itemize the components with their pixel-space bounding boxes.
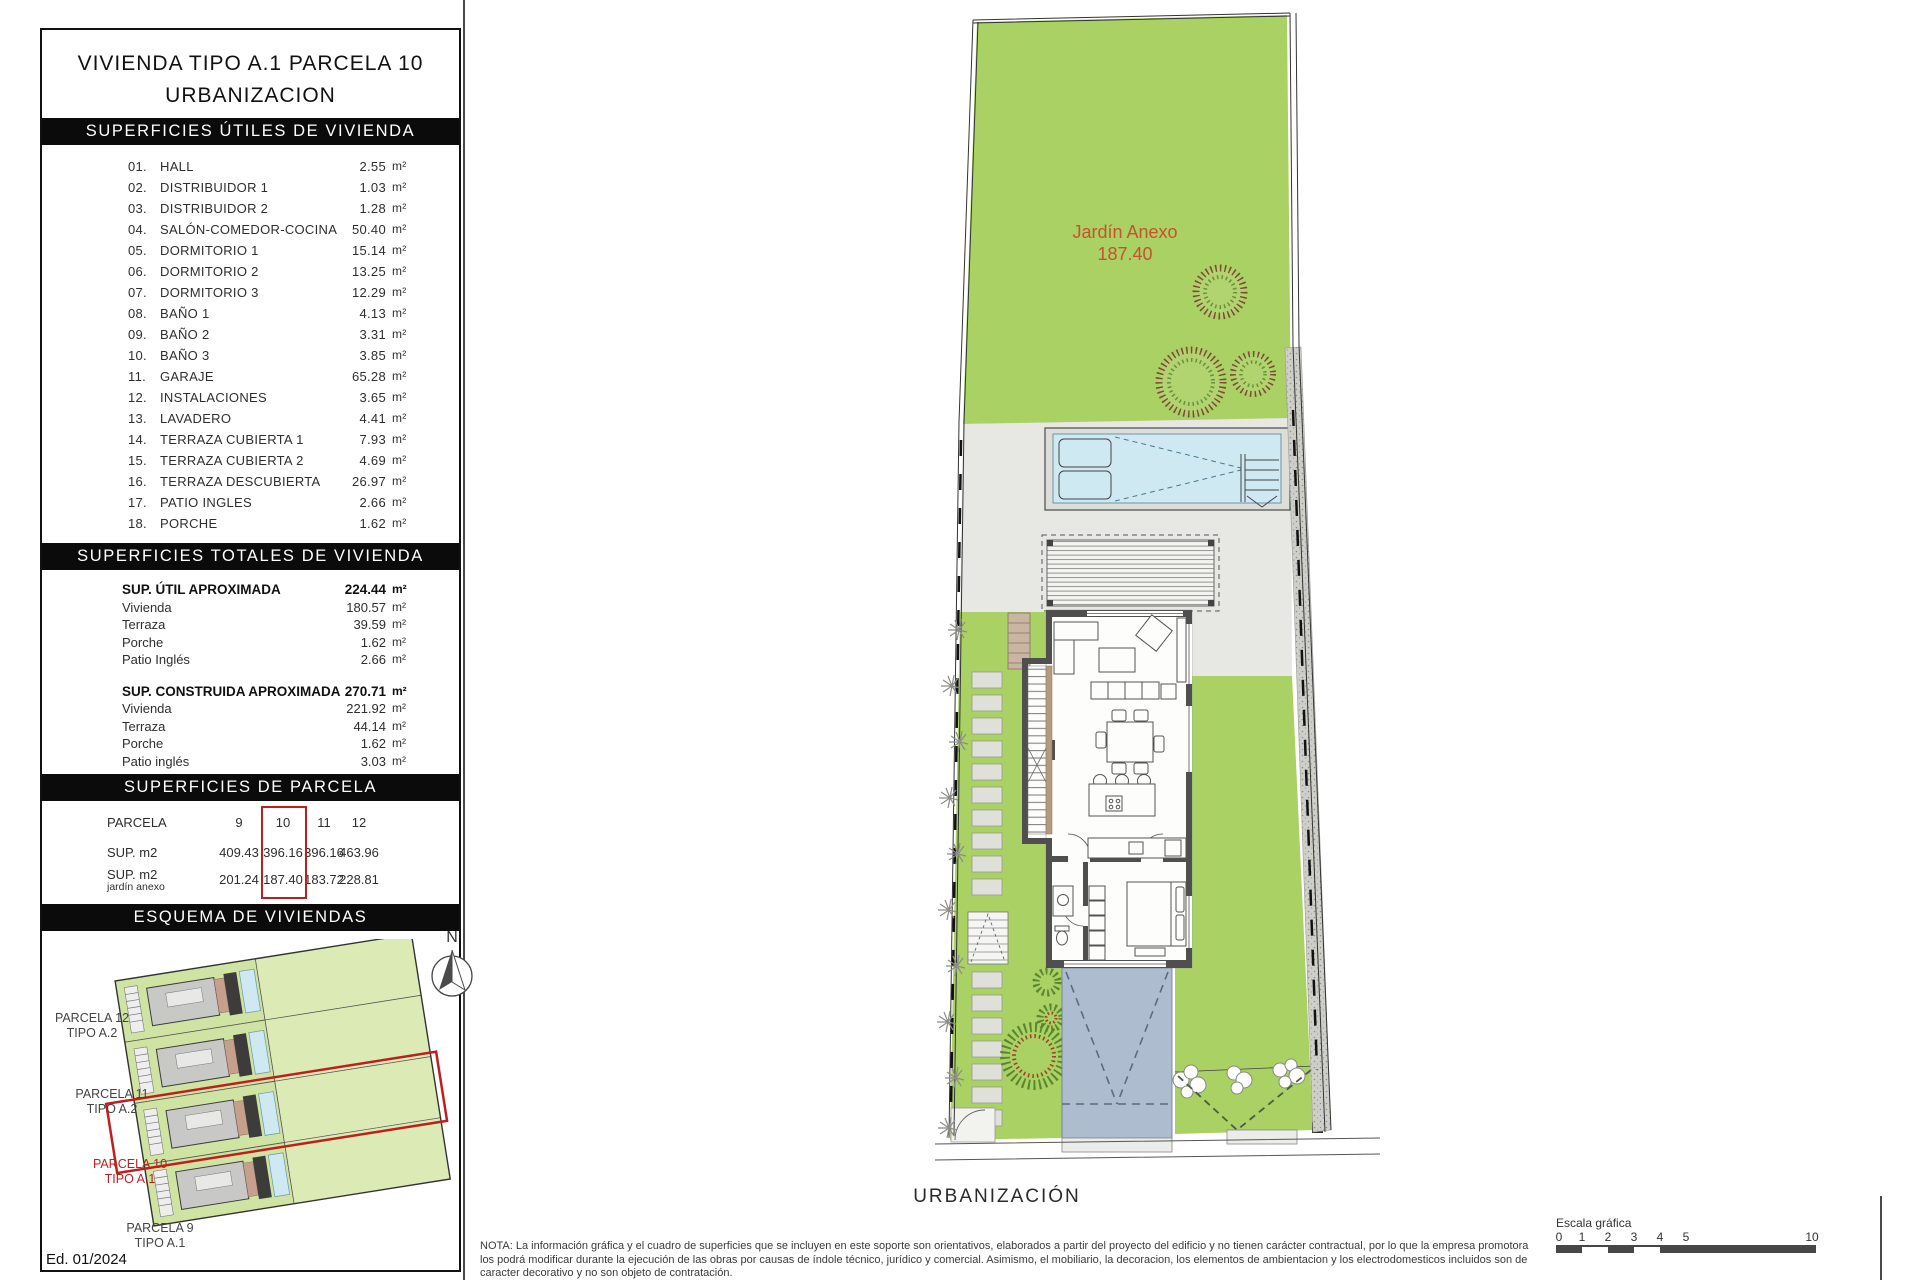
plan-caption: URBANIZACIÓN [866, 1186, 1128, 1208]
room-label: DORMITORIO 1 [160, 243, 259, 258]
sideboard [1108, 682, 1125, 699]
kitchen-sink [1129, 842, 1143, 854]
parcela-col-label: PARCELA [107, 815, 167, 830]
disclaimer-note: NOTA: La información gráfica y el cuadro… [480, 1240, 1542, 1280]
section-header-superficies-parcela: SUPERFICIES DE PARCELA [42, 774, 459, 801]
room-label: TERRAZA DESCUBIERTA [160, 474, 321, 489]
sideboard [1091, 682, 1108, 699]
room-label: DISTRIBUIDOR 2 [160, 201, 268, 216]
esquema-parcel-label: PARCELA 12TIPO A.2 [42, 1011, 142, 1041]
room-row: 03.DISTRIBUIDOR 21.28m² [42, 201, 459, 222]
wardrobe [1089, 901, 1105, 915]
room-label: BAÑO 2 [160, 327, 209, 342]
floor-plan: Jardín Anexo 187.40 [935, 10, 1380, 1165]
room-number: 13. [128, 411, 147, 426]
section-header-superficies-totales: SUPERFICIES TOTALES DE VIVIENDA [42, 543, 459, 570]
pool-lounger [1059, 471, 1111, 499]
sideboard [1142, 682, 1159, 699]
room-row: 02.DISTRIBUIDOR 11.03m² [42, 180, 459, 201]
total-row: Patio inglés3.03m² [42, 754, 459, 772]
room-number: 09. [128, 327, 147, 342]
sup-jardin-value: 201.24 [219, 872, 259, 887]
staircase [1028, 666, 1052, 834]
pillow [1176, 887, 1184, 912]
pool-lounger [1059, 439, 1111, 467]
house [1022, 610, 1192, 968]
room-label: INSTALACIONES [160, 390, 267, 405]
room-area-value: 3.85 [310, 348, 386, 363]
room-area-unit: m² [392, 264, 407, 278]
room-label: DISTRIBUIDOR 1 [160, 180, 268, 195]
toilet [1057, 931, 1068, 945]
room-area-unit: m² [392, 369, 407, 383]
room-area-value: 50.40 [310, 222, 386, 237]
section-header-superficies-utiles: SUPERFICIES ÚTILES DE VIVIENDA [42, 118, 459, 145]
room-number: 18. [128, 516, 147, 531]
room-area-value: 12.29 [310, 285, 386, 300]
room-area-value: 65.28 [310, 369, 386, 384]
total-row: Terraza39.59m² [42, 617, 459, 635]
room-area-list: 01.HALL2.55m² 02.DISTRIBUIDOR 11.03m² 03… [42, 145, 459, 537]
room-area-unit: m² [392, 474, 407, 488]
room-row: 08.BAÑO 14.13m² [42, 306, 459, 327]
sideboard [1161, 684, 1176, 699]
wardrobe [1089, 886, 1105, 900]
esquema-parcel-label: PARCELA 9TIPO A.1 [110, 1221, 210, 1251]
rear-garden-right [1173, 676, 1315, 1134]
room-row: 17.PATIO INGLES2.66m² [42, 495, 459, 516]
swimming-pool [1045, 428, 1290, 510]
room-number: 14. [128, 432, 147, 447]
room-number: 11. [128, 369, 146, 384]
room-number: 16. [128, 474, 147, 489]
esquema-parcel-label-highlighted: PARCELA 10TIPO A.1 [80, 1157, 180, 1187]
total-row: Porche1.62m² [42, 635, 459, 653]
room-area-unit: m² [392, 411, 407, 425]
room-area-value: 4.41 [310, 411, 386, 426]
room-area-unit: m² [392, 306, 407, 320]
cooktop [1106, 796, 1122, 811]
room-area-value: 4.69 [310, 453, 386, 468]
room-label: BAÑO 3 [160, 348, 209, 363]
room-area-unit: m² [392, 390, 407, 404]
room-row: 14.TERRAZA CUBIERTA 17.93m² [42, 432, 459, 453]
toilet [1055, 926, 1069, 931]
sup-m2-label: SUP. m2 [107, 845, 157, 860]
sup-m2-value: 463.96 [339, 845, 379, 860]
room-row: 15.TERRAZA CUBIERTA 24.69m² [42, 453, 459, 474]
room-number: 15. [128, 453, 147, 468]
driveway-apron [1062, 1138, 1172, 1152]
room-area-value: 1.62 [310, 516, 386, 531]
room-label: TERRAZA CUBIERTA 1 [160, 432, 304, 447]
room-row: 05.DORMITORIO 115.14m² [42, 243, 459, 264]
room-number: 03. [128, 201, 147, 216]
room-row: 06.DORMITORIO 213.25m² [42, 264, 459, 285]
room-row: 18.PORCHE1.62m² [42, 516, 459, 537]
room-row: 16.TERRAZA DESCUBIERTA26.97m² [42, 474, 459, 495]
room-area-value: 2.66 [310, 495, 386, 510]
totals-block: SUP. ÚTIL APROXIMADA224.44m² Vivienda180… [42, 570, 459, 771]
scale-bar-segments [1556, 1245, 1818, 1253]
bath-sink [1058, 895, 1069, 906]
garden-stair [968, 912, 1008, 964]
room-row: 09.BAÑO 23.31m² [42, 327, 459, 348]
room-area-value: 2.55 [310, 159, 386, 174]
room-number: 06. [128, 264, 147, 279]
total-row: Terraza44.14m² [42, 719, 459, 737]
room-area-value: 26.97 [310, 474, 386, 489]
room-label: PORCHE [160, 516, 217, 531]
room-area-unit: m² [392, 201, 407, 215]
room-number: 05. [128, 243, 147, 258]
info-panel: VIVIENDA TIPO A.1 PARCELA 10 URBANIZACIO… [40, 28, 461, 1272]
room-area-unit: m² [392, 159, 407, 173]
room-row: 04.SALÓN-COMEDOR-COCINA50.40m² [42, 222, 459, 243]
total-row: Porche1.62m² [42, 736, 459, 754]
room-area-value: 4.13 [310, 306, 386, 321]
wardrobe [1089, 931, 1105, 945]
wardrobe [1089, 916, 1105, 930]
annex-garden: Jardín Anexo 187.40 [963, 15, 1291, 424]
room-area-unit: m² [392, 180, 407, 194]
room-number: 10. [128, 348, 147, 363]
room-number: 12. [128, 390, 147, 405]
room-row: 01.HALL2.55m² [42, 159, 459, 180]
sup-jardin-label: SUP. m2 [107, 867, 157, 882]
room-row: 12.INSTALACIONES3.65m² [42, 390, 459, 411]
room-area-unit: m² [392, 222, 407, 236]
title-block: VIVIENDA TIPO A.1 PARCELA 10 URBANIZACIO… [42, 30, 459, 108]
sup-m2-value: 396.16 [304, 845, 344, 860]
garden-tree [1196, 268, 1244, 316]
scale-bar-label: Escala gráfica [1556, 1216, 1818, 1230]
garden-tree [1233, 354, 1273, 394]
garden-area-value: 187.40 [1097, 244, 1152, 264]
room-area-value: 13.25 [310, 264, 386, 279]
room-area-value: 1.28 [310, 201, 386, 216]
room-area-value: 3.65 [310, 390, 386, 405]
room-area-value: 1.03 [310, 180, 386, 195]
room-area-unit: m² [392, 327, 407, 341]
room-number: 02. [128, 180, 147, 195]
room-label: TERRAZA CUBIERTA 2 [160, 453, 304, 468]
room-area-unit: m² [392, 348, 407, 362]
north-arrow-icon: N [424, 920, 480, 1006]
room-area-unit: m² [392, 432, 407, 446]
garden-tree [1159, 350, 1223, 414]
pedestrian-gate [951, 1108, 995, 1142]
room-area-unit: m² [392, 243, 407, 257]
sup-jardin-value: 183.72 [304, 872, 344, 887]
total-row: Vivienda221.92m² [42, 701, 459, 719]
room-label: DORMITORIO 2 [160, 264, 259, 279]
room-label: DORMITORIO 3 [160, 285, 259, 300]
room-area-unit: m² [392, 453, 407, 467]
parcela-number: 9 [219, 815, 259, 830]
room-number: 07. [128, 285, 147, 300]
scale-bar: Escala gráfica 0 1 2 3 4 5 10 [1556, 1216, 1818, 1253]
total-row: SUP. CONSTRUIDA APROXIMADA270.71m² [42, 684, 459, 702]
parcela-number: 11 [304, 815, 344, 830]
room-label: HALL [160, 159, 194, 174]
fridge [1165, 840, 1181, 856]
esquema-section: PARCELA 12TIPO A.2 PARCELA 11TIPO A.2 PA… [42, 931, 459, 1272]
room-number: 08. [128, 306, 147, 321]
entrance-apron [1227, 1130, 1297, 1144]
scale-bar-ticks: 0 1 2 3 4 5 10 [1556, 1230, 1818, 1245]
esquema-parcel-label: PARCELA 11TIPO A.2 [62, 1087, 162, 1117]
room-row: 13.LAVADERO4.41m² [42, 411, 459, 432]
wardrobe [1089, 946, 1105, 960]
bed-bench [1135, 948, 1165, 956]
coffee-table [1099, 648, 1135, 672]
room-label: LAVADERO [160, 411, 231, 426]
panel-divider-line [463, 0, 465, 1280]
room-area-value: 7.93 [310, 432, 386, 447]
room-label: PATIO INGLES [160, 495, 252, 510]
room-row: 11.GARAJE65.28m² [42, 369, 459, 390]
north-label: N [446, 929, 458, 946]
plan-sheet: VIVIENDA TIPO A.1 PARCELA 10 URBANIZACIO… [0, 0, 1920, 1280]
sup-m2-value: 409.43 [219, 845, 259, 860]
parcela-table: PARCELA 9 10 11 12 SUP. m2 409.43 396.16… [42, 801, 459, 904]
room-area-unit: m² [392, 516, 407, 530]
room-number: 01. [128, 159, 147, 174]
room-number: 04. [128, 222, 147, 237]
pillow [1176, 915, 1184, 940]
room-row: 07.DORMITORIO 312.29m² [42, 285, 459, 306]
covered-terrace-canopy [1042, 535, 1219, 611]
sheet-title-line2: URBANIZACION [42, 84, 459, 108]
room-row: 10.BAÑO 33.85m² [42, 348, 459, 369]
section-header-esquema: ESQUEMA DE VIVIENDAS [42, 904, 459, 931]
sheet-title-line1: VIVIENDA TIPO A.1 PARCELA 10 [42, 52, 459, 76]
total-row: Vivienda180.57m² [42, 600, 459, 618]
total-row: SUP. ÚTIL APROXIMADA224.44m² [42, 582, 459, 600]
sup-jardin-value: 228.81 [339, 872, 379, 887]
room-area-unit: m² [392, 285, 407, 299]
edition-label: Ed. 01/2024 [46, 1251, 127, 1268]
sup-jardin-sublabel: jardín anexo [107, 881, 165, 893]
tv-cabinet [1177, 618, 1186, 682]
room-label: GARAJE [160, 369, 214, 384]
dining-table [1107, 722, 1153, 762]
room-area-value: 15.14 [310, 243, 386, 258]
room-label: BAÑO 1 [160, 306, 209, 321]
garden-label: Jardín Anexo [1072, 222, 1177, 242]
right-frame-line [1880, 1196, 1882, 1280]
highlighted-parcela-box [261, 806, 307, 899]
total-row: Patio Inglés2.66m² [42, 652, 459, 670]
room-area-value: 3.31 [310, 327, 386, 342]
room-number: 17. [128, 495, 147, 510]
sideboard [1125, 682, 1142, 699]
sofa [1054, 622, 1098, 640]
room-area-unit: m² [392, 495, 407, 509]
parcela-number: 12 [339, 815, 379, 830]
